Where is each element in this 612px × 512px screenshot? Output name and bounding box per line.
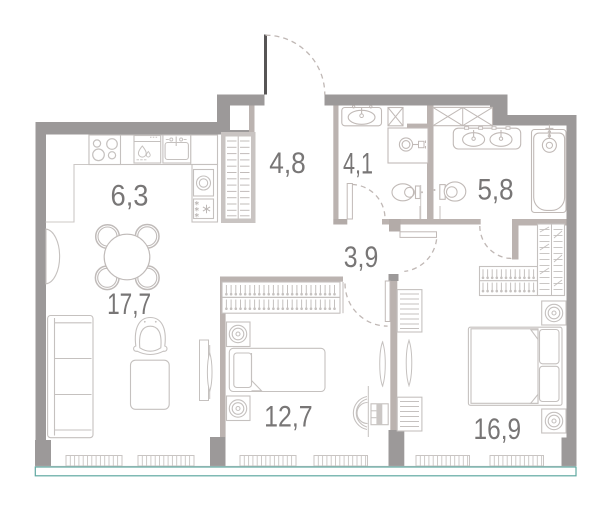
svg-text:3,9: 3,9	[344, 241, 379, 274]
svg-text:4,8: 4,8	[269, 147, 306, 180]
svg-text:16,9: 16,9	[474, 413, 522, 446]
svg-text:6,3: 6,3	[111, 180, 149, 213]
svg-text:17,7: 17,7	[107, 288, 151, 321]
svg-text:12,7: 12,7	[264, 401, 313, 434]
svg-text:4,1: 4,1	[343, 148, 373, 181]
svg-text:5,8: 5,8	[478, 174, 514, 207]
